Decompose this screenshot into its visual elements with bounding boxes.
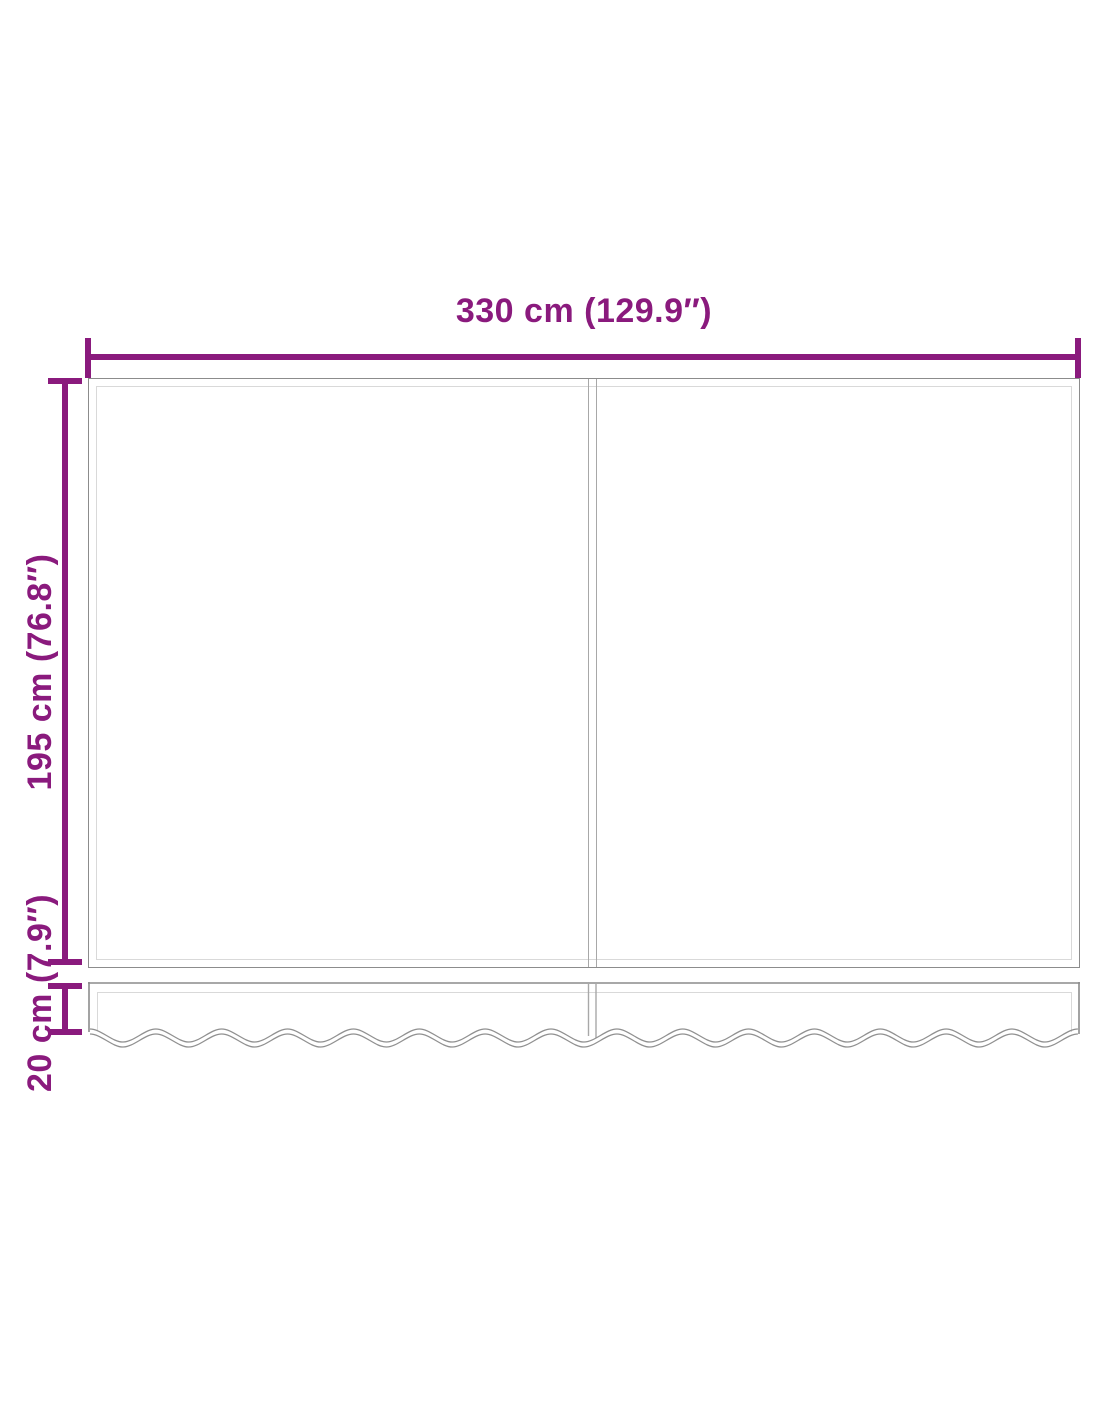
awning-dimension-diagram: 330 cm (129.9″) 195 cm (76.8″) 20 cm (7.… [0, 0, 1100, 1422]
height-dimension-tick-top [48, 378, 82, 384]
awning-fabric-panel [88, 378, 1080, 968]
fabric-center-seam-left-line [588, 379, 589, 967]
fabric-inner-hem-line [96, 386, 1072, 960]
fabric-center-seam-right-line [596, 379, 597, 967]
width-dimension-label: 330 cm (129.9″) [88, 292, 1080, 331]
valance-strip [88, 982, 1080, 1054]
valance-height-dimension-tick-top [48, 983, 82, 989]
valance-height-dimension-line [62, 986, 68, 1032]
valance-height-dimension-label: 20 cm (7.9″) [18, 791, 62, 1195]
valance-height-dimension-tick-bottom [48, 1029, 82, 1035]
width-dimension-tick-left [85, 338, 91, 378]
height-dimension-line [62, 381, 68, 963]
width-dimension-tick-right [1075, 338, 1081, 378]
width-dimension-line [88, 354, 1080, 360]
